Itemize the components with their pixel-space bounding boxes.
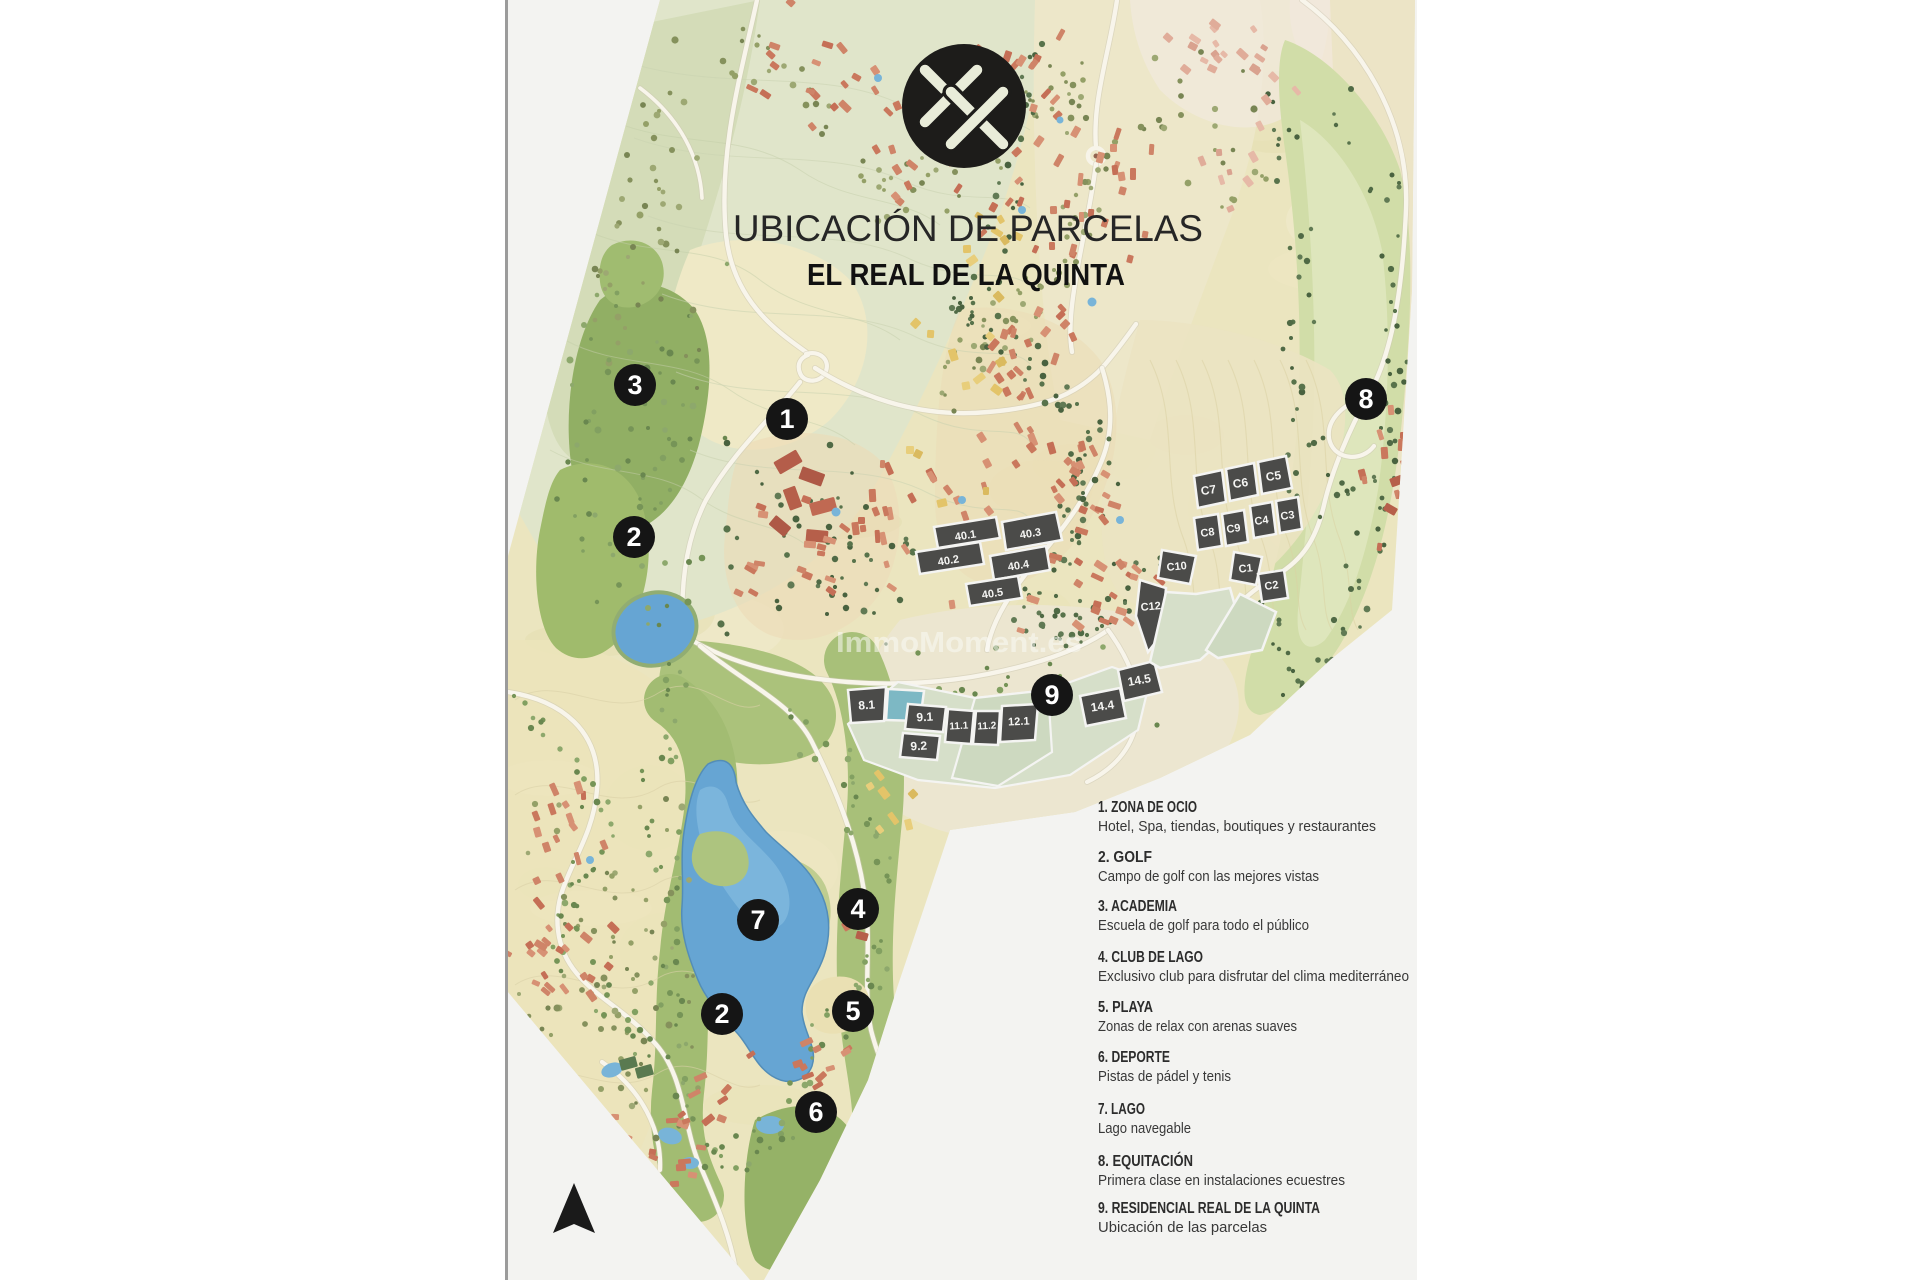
- svg-text:5: 5: [845, 996, 860, 1026]
- svg-text:C5: C5: [1265, 468, 1282, 484]
- svg-text:C4: C4: [1254, 514, 1270, 528]
- svg-text:Exclusivo club para disfrutar: Exclusivo club para disfrutar del clima …: [1098, 968, 1409, 985]
- svg-text:Pistas de pádel y tenis: Pistas de pádel y tenis: [1098, 1068, 1231, 1085]
- svg-text:EL REAL DE LA QUINTA: EL REAL DE LA QUINTA: [807, 257, 1125, 292]
- svg-text:4: 4: [850, 894, 865, 924]
- svg-text:8. EQUITACIÓN: 8. EQUITACIÓN: [1098, 1151, 1193, 1170]
- svg-text:1. ZONA DE OCIO: 1. ZONA DE OCIO: [1098, 799, 1197, 816]
- svg-text:9: 9: [1044, 680, 1059, 710]
- svg-text:9.2: 9.2: [910, 739, 928, 754]
- svg-text:Zonas de relax con arenas suav: Zonas de relax con arenas suaves: [1098, 1018, 1297, 1035]
- svg-text:ImmoMoment.es: ImmoMoment.es: [836, 627, 1082, 659]
- svg-text:C3: C3: [1280, 509, 1296, 523]
- svg-text:4. CLUB DE LAGO: 4. CLUB DE LAGO: [1098, 949, 1203, 966]
- svg-text:UBICACIÓN DE PARCELAS: UBICACIÓN DE PARCELAS: [733, 208, 1203, 249]
- svg-text:C10: C10: [1166, 560, 1187, 574]
- svg-text:Ubicación de las parcelas: Ubicación de las parcelas: [1098, 1219, 1267, 1236]
- svg-text:8.1: 8.1: [858, 697, 876, 712]
- svg-text:C7: C7: [1200, 482, 1217, 498]
- svg-text:Escuela de golf para todo el p: Escuela de golf para todo el público: [1098, 917, 1309, 934]
- svg-text:1: 1: [779, 404, 794, 434]
- svg-text:11.1: 11.1: [949, 720, 969, 732]
- svg-text:C8: C8: [1200, 526, 1216, 540]
- svg-text:2: 2: [626, 522, 641, 552]
- svg-text:9. RESIDENCIAL REAL DE LA QUIN: 9. RESIDENCIAL REAL DE LA QUINTA: [1098, 1200, 1320, 1217]
- svg-text:2. GOLF: 2. GOLF: [1098, 849, 1152, 866]
- svg-text:11.2: 11.2: [977, 720, 997, 732]
- svg-text:C6: C6: [1232, 475, 1249, 491]
- svg-text:Primera clase en instalaciones: Primera clase en instalaciones ecuestres: [1098, 1172, 1345, 1189]
- svg-text:6. DEPORTE: 6. DEPORTE: [1098, 1049, 1170, 1066]
- svg-text:7: 7: [750, 905, 765, 935]
- svg-text:3: 3: [627, 370, 642, 400]
- svg-text:8: 8: [1358, 384, 1373, 414]
- svg-text:7. LAGO: 7. LAGO: [1098, 1101, 1145, 1118]
- svg-text:Hotel, Spa, tiendas, boutiques: Hotel, Spa, tiendas, boutiques y restaur…: [1098, 818, 1376, 835]
- svg-text:C9: C9: [1226, 522, 1242, 536]
- svg-text:Lago navegable: Lago navegable: [1098, 1120, 1191, 1137]
- svg-text:3. ACADEMIA: 3. ACADEMIA: [1098, 898, 1177, 915]
- svg-text:12.1: 12.1: [1008, 715, 1030, 728]
- svg-text:2: 2: [714, 999, 729, 1029]
- svg-text:9.1: 9.1: [916, 710, 934, 725]
- svg-text:5. PLAYA: 5. PLAYA: [1098, 999, 1153, 1016]
- svg-text:C2: C2: [1264, 579, 1280, 593]
- svg-text:C1: C1: [1238, 562, 1253, 575]
- svg-text:C12: C12: [1140, 600, 1161, 614]
- svg-text:Campo de golf con las mejores: Campo de golf con las mejores vistas: [1098, 868, 1319, 885]
- svg-text:6: 6: [808, 1097, 823, 1127]
